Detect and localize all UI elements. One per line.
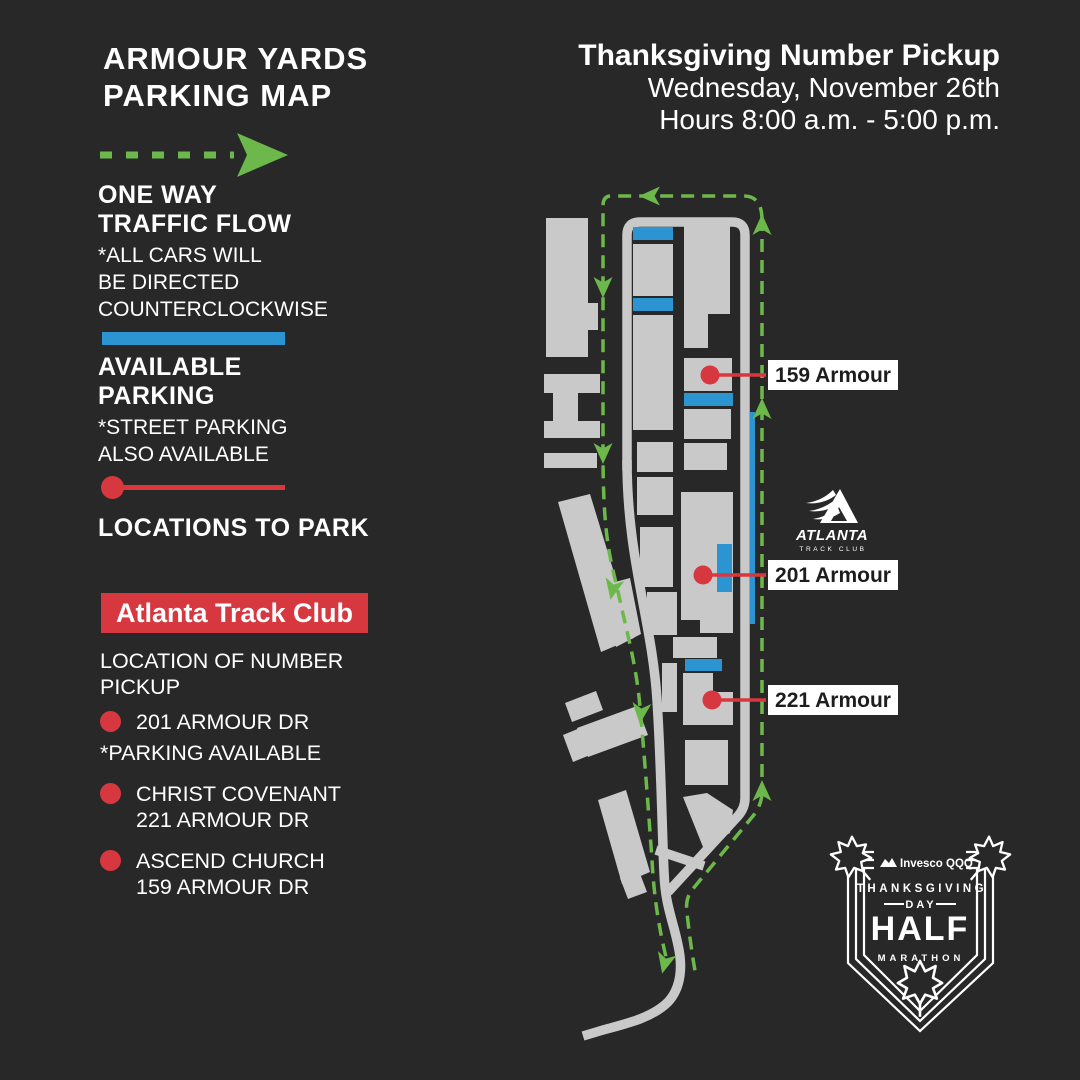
one-way-legend: ONE WAY TRAFFIC FLOW *ALL CARS WILL BE D…	[98, 181, 328, 323]
pickup-item-address: 201 ARMOUR DR	[136, 709, 309, 735]
maple-leaf-icon	[898, 961, 942, 1017]
sponsor-label: Invesco QQQ	[900, 858, 973, 870]
red-dot-icon	[100, 850, 121, 871]
list-item: ASCEND CHURCH 159 ARMOUR DR	[100, 848, 420, 900]
marker-dot	[101, 476, 124, 499]
pickup-header: LOCATION OF NUMBER PICKUP	[100, 648, 420, 700]
pickup-item-address: ASCEND CHURCH 159 ARMOUR DR	[136, 848, 325, 900]
one-way-label: ONE WAY TRAFFIC FLOW	[98, 181, 328, 239]
red-dot-icon	[100, 711, 121, 732]
parking-legend: AVAILABLE PARKING *STREET PARKING ALSO A…	[98, 353, 287, 468]
map-label-221: 221 Armour	[775, 689, 891, 712]
parking-label: AVAILABLE PARKING	[98, 353, 287, 411]
event-header: Thanksgiving Number Pickup Wednesday, No…	[578, 40, 1000, 136]
pickup-item-note: *PARKING AVAILABLE	[100, 740, 420, 766]
one-way-note: *ALL CARS WILL BE DIRECTED COUNTERCLOCKW…	[98, 242, 328, 323]
marathon-line3: HALF	[871, 910, 970, 948]
map-label-201: 201 Armour	[775, 564, 891, 587]
event-hours: Hours 8:00 a.m. - 5:00 p.m.	[578, 104, 1000, 136]
available-parking-swatch	[102, 332, 285, 345]
atc-logo-name: ATLANTA	[795, 527, 868, 544]
locations-legend-label: LOCATIONS TO PARK	[98, 514, 369, 543]
marathon-line1: THANKSGIVING	[857, 883, 987, 895]
red-dot-icon	[100, 783, 121, 804]
atc-logo: ATLANTA TRACK CLUB	[795, 489, 868, 553]
event-title: Thanksgiving Number Pickup	[578, 40, 1000, 72]
marathon-line4: MARATHON	[878, 953, 965, 964]
page-title: ARMOUR YARDS PARKING MAP	[103, 40, 368, 114]
dashed-arrow-icon	[100, 132, 290, 180]
parking-map-flyer: ARMOUR YARDS PARKING MAP Thanksgiving Nu…	[0, 0, 1080, 1080]
map: 159 Armour 201 Armour 221 Armour ATLANTA…	[520, 170, 1080, 1080]
winged-a-icon	[806, 489, 858, 523]
atc-logo-sub: TRACK CLUB	[799, 546, 866, 553]
list-item: CHRIST COVENANT 221 ARMOUR DR	[100, 781, 420, 833]
list-item: 201 ARMOUR DR	[100, 709, 420, 735]
pickup-item-address: CHRIST COVENANT 221 ARMOUR DR	[136, 781, 341, 833]
marker-line	[112, 485, 285, 490]
marathon-logo: Invesco QQQ THANKSGIVING DAY HALF MARATH…	[823, 829, 1017, 1031]
parking-note: *STREET PARKING ALSO AVAILABLE	[98, 414, 287, 468]
atc-banner: Atlanta Track Club	[101, 593, 368, 633]
location-marker-icon	[101, 476, 291, 500]
event-date: Wednesday, November 26th	[578, 72, 1000, 104]
map-label-159: 159 Armour	[775, 364, 891, 387]
pickup-list: LOCATION OF NUMBER PICKUP 201 ARMOUR DR …	[100, 648, 420, 900]
